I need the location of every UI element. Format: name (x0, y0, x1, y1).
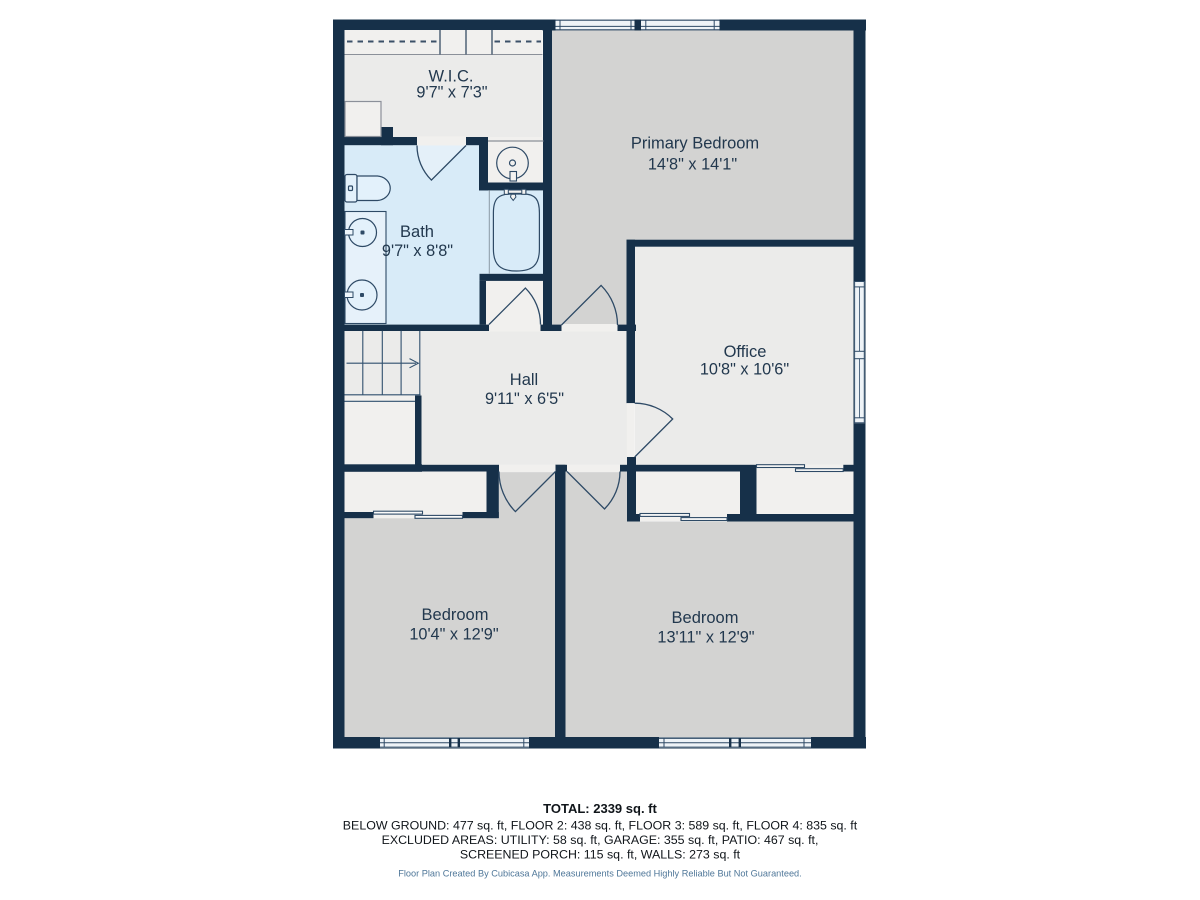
svg-text:Bedroom: Bedroom (422, 606, 489, 624)
svg-text:14'8" x 14'1": 14'8" x 14'1" (648, 156, 738, 174)
svg-text:Bath: Bath (400, 223, 434, 241)
svg-text:13'11" x 12'9": 13'11" x 12'9" (657, 629, 754, 647)
svg-text:9'11" x 6'5": 9'11" x 6'5" (485, 390, 564, 408)
svg-text:10'8" x 10'6": 10'8" x 10'6" (700, 361, 790, 379)
svg-text:Bedroom: Bedroom (672, 609, 739, 627)
svg-text:Office: Office (724, 343, 767, 361)
svg-text:TOTAL: 2339 sq. ft: TOTAL: 2339 sq. ft (543, 801, 657, 816)
svg-text:BELOW GROUND: 477 sq. ft, FLOO: BELOW GROUND: 477 sq. ft, FLOOR 2: 438 s… (343, 819, 858, 833)
svg-text:EXCLUDED AREAS: UTILITY: 58 sq: EXCLUDED AREAS: UTILITY: 58 sq. ft, GARA… (382, 833, 819, 847)
svg-text:Hall: Hall (510, 371, 538, 389)
svg-text:9'7" x 8'8": 9'7" x 8'8" (382, 242, 453, 260)
svg-text:SCREENED PORCH: 115 sq. ft, WA: SCREENED PORCH: 115 sq. ft, WALLS: 273 s… (460, 848, 741, 862)
svg-text:Floor Plan Created By Cubicasa: Floor Plan Created By Cubicasa App. Meas… (398, 869, 801, 879)
svg-text:Primary Bedroom: Primary Bedroom (631, 135, 759, 153)
svg-text:9'7" x 7'3": 9'7" x 7'3" (416, 84, 487, 102)
svg-text:10'4" x 12'9": 10'4" x 12'9" (409, 626, 499, 644)
